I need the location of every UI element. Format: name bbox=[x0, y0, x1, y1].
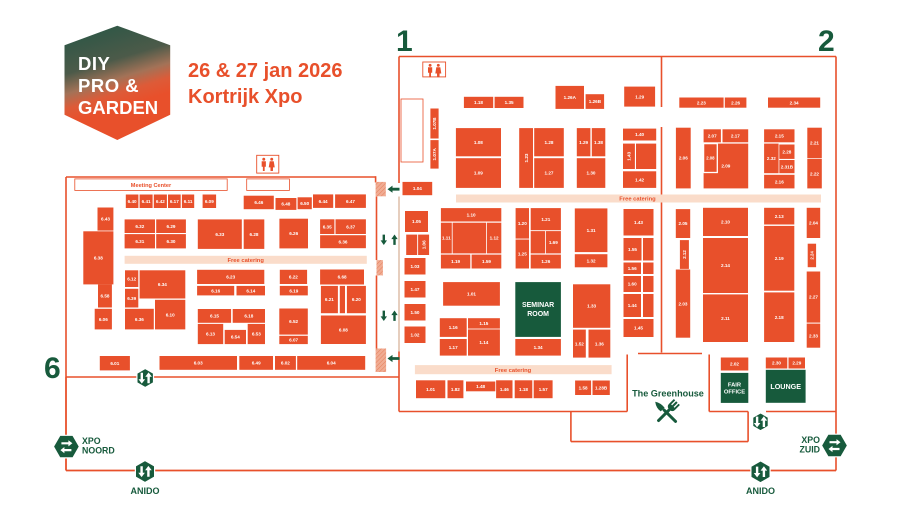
svg-text:2.29: 2.29 bbox=[792, 361, 801, 366]
svg-text:1: 1 bbox=[396, 25, 413, 58]
svg-text:2.27: 2.27 bbox=[809, 295, 818, 300]
svg-text:1.44: 1.44 bbox=[628, 303, 637, 308]
svg-text:6: 6 bbox=[44, 352, 61, 385]
svg-text:1.29: 1.29 bbox=[635, 94, 644, 99]
svg-text:1.43: 1.43 bbox=[627, 151, 632, 160]
svg-text:1.28B: 1.28B bbox=[595, 385, 608, 390]
svg-text:1.82: 1.82 bbox=[451, 387, 460, 392]
svg-text:1.31: 1.31 bbox=[587, 228, 596, 233]
svg-text:1.07B: 1.07B bbox=[432, 117, 437, 130]
svg-text:6.49: 6.49 bbox=[252, 361, 261, 366]
svg-text:2.05: 2.05 bbox=[679, 221, 688, 226]
svg-text:2.10: 2.10 bbox=[721, 220, 730, 225]
svg-text:1.43: 1.43 bbox=[634, 220, 643, 225]
svg-text:6.54: 6.54 bbox=[231, 335, 240, 340]
svg-text:1.25: 1.25 bbox=[518, 252, 527, 257]
svg-text:6.40: 6.40 bbox=[128, 199, 137, 204]
svg-text:GARDEN: GARDEN bbox=[78, 97, 158, 118]
svg-text:6.37: 6.37 bbox=[346, 224, 355, 229]
svg-text:2.18: 2.18 bbox=[775, 315, 784, 320]
svg-text:2.24: 2.24 bbox=[810, 251, 815, 260]
svg-text:2.23: 2.23 bbox=[697, 100, 706, 105]
svg-text:1.38: 1.38 bbox=[594, 140, 603, 145]
svg-text:6.11: 6.11 bbox=[184, 199, 193, 204]
svg-text:1.40: 1.40 bbox=[635, 132, 644, 137]
svg-text:6.19: 6.19 bbox=[289, 288, 298, 293]
svg-text:1.36: 1.36 bbox=[595, 341, 604, 346]
svg-text:2.08: 2.08 bbox=[706, 156, 715, 161]
svg-text:6.41: 6.41 bbox=[142, 199, 151, 204]
svg-text:6.10: 6.10 bbox=[166, 312, 175, 317]
svg-text:6.21: 6.21 bbox=[325, 297, 334, 302]
svg-text:2.03: 2.03 bbox=[679, 301, 688, 306]
svg-text:ROOM: ROOM bbox=[527, 311, 549, 318]
svg-text:1.46: 1.46 bbox=[500, 387, 509, 392]
svg-text:1.20: 1.20 bbox=[518, 221, 527, 226]
svg-text:1.26B: 1.26B bbox=[589, 99, 602, 104]
svg-text:1.52: 1.52 bbox=[575, 341, 584, 346]
svg-text:1.23: 1.23 bbox=[524, 153, 529, 162]
svg-text:1.18: 1.18 bbox=[519, 387, 528, 392]
svg-text:6.50: 6.50 bbox=[300, 201, 309, 206]
svg-text:6.42: 6.42 bbox=[156, 199, 165, 204]
svg-text:2.13: 2.13 bbox=[775, 214, 784, 219]
svg-text:1.05: 1.05 bbox=[412, 219, 421, 224]
svg-text:1.01: 1.01 bbox=[467, 292, 476, 297]
svg-text:1.34: 1.34 bbox=[534, 345, 543, 350]
svg-text:1.02: 1.02 bbox=[411, 332, 420, 337]
svg-text:6.46: 6.46 bbox=[254, 200, 263, 205]
svg-text:1.33: 1.33 bbox=[587, 304, 596, 309]
svg-text:6.68: 6.68 bbox=[338, 275, 347, 280]
svg-text:1.28: 1.28 bbox=[545, 140, 554, 145]
svg-text:2.06: 2.06 bbox=[679, 156, 688, 161]
svg-text:1.59: 1.59 bbox=[482, 259, 491, 264]
svg-text:Kortrijk Xpo: Kortrijk Xpo bbox=[188, 86, 302, 108]
svg-text:ANIDO: ANIDO bbox=[746, 486, 775, 496]
svg-text:2.26: 2.26 bbox=[731, 100, 740, 105]
svg-text:LOUNGE: LOUNGE bbox=[770, 382, 801, 391]
svg-text:6.22: 6.22 bbox=[289, 275, 298, 280]
svg-text:1.32: 1.32 bbox=[587, 258, 596, 263]
svg-text:6.53: 6.53 bbox=[252, 332, 261, 337]
svg-text:Free catering: Free catering bbox=[227, 258, 264, 264]
svg-text:6.52: 6.52 bbox=[289, 319, 298, 324]
svg-text:6.48: 6.48 bbox=[281, 202, 290, 207]
svg-text:1.55: 1.55 bbox=[628, 247, 637, 252]
svg-text:6.29: 6.29 bbox=[167, 224, 176, 229]
svg-text:1.58: 1.58 bbox=[579, 385, 588, 390]
svg-text:2.19: 2.19 bbox=[775, 256, 784, 261]
svg-text:26 & 27 jan 2026: 26 & 27 jan 2026 bbox=[188, 60, 343, 82]
svg-text:6.31: 6.31 bbox=[135, 239, 144, 244]
svg-text:6.23: 6.23 bbox=[226, 275, 235, 280]
svg-text:6.36: 6.36 bbox=[135, 317, 144, 322]
svg-text:6.28: 6.28 bbox=[250, 232, 259, 237]
svg-text:6.39: 6.39 bbox=[127, 296, 136, 301]
svg-text:1.26A: 1.26A bbox=[564, 95, 577, 100]
svg-text:1.07A: 1.07A bbox=[432, 147, 437, 160]
svg-text:ZUID: ZUID bbox=[799, 445, 820, 455]
svg-text:2.21: 2.21 bbox=[810, 141, 819, 146]
svg-text:6.08: 6.08 bbox=[339, 327, 348, 332]
svg-text:6.36: 6.36 bbox=[339, 239, 348, 244]
svg-text:1.26: 1.26 bbox=[541, 259, 550, 264]
svg-text:The Greenhouse: The Greenhouse bbox=[632, 389, 704, 399]
svg-text:2.04: 2.04 bbox=[809, 221, 818, 226]
svg-text:6.47: 6.47 bbox=[346, 199, 355, 204]
svg-text:1.11: 1.11 bbox=[442, 236, 451, 241]
svg-text:6.18: 6.18 bbox=[244, 314, 253, 319]
svg-text:6.03: 6.03 bbox=[194, 361, 203, 366]
svg-text:2.17: 2.17 bbox=[731, 134, 740, 139]
svg-text:ANIDO: ANIDO bbox=[131, 486, 160, 496]
svg-text:1.21: 1.21 bbox=[541, 217, 550, 222]
svg-text:2.09: 2.09 bbox=[721, 164, 730, 169]
svg-text:1.14: 1.14 bbox=[479, 340, 488, 345]
svg-text:1.15: 1.15 bbox=[479, 321, 488, 326]
svg-text:6.13: 6.13 bbox=[206, 332, 215, 337]
svg-text:2.31B: 2.31B bbox=[781, 164, 794, 169]
svg-text:1.45: 1.45 bbox=[634, 326, 643, 331]
svg-text:1.29: 1.29 bbox=[579, 140, 588, 145]
svg-text:1.04: 1.04 bbox=[413, 186, 422, 191]
svg-text:6.02: 6.02 bbox=[281, 361, 290, 366]
svg-text:XPO: XPO bbox=[801, 435, 820, 445]
svg-text:1.50: 1.50 bbox=[411, 310, 420, 315]
svg-text:2.11: 2.11 bbox=[721, 316, 730, 321]
svg-text:6.04: 6.04 bbox=[327, 361, 336, 366]
svg-text:1.08: 1.08 bbox=[474, 140, 483, 145]
svg-text:OFFICE: OFFICE bbox=[724, 390, 745, 396]
svg-text:6.38: 6.38 bbox=[94, 256, 103, 261]
svg-text:1.47: 1.47 bbox=[411, 287, 420, 292]
svg-text:1.42: 1.42 bbox=[635, 177, 644, 182]
svg-text:1.69: 1.69 bbox=[549, 240, 558, 245]
svg-text:Free catering: Free catering bbox=[495, 368, 532, 374]
svg-text:1.09: 1.09 bbox=[474, 171, 483, 176]
svg-text:2.12: 2.12 bbox=[682, 250, 687, 259]
svg-text:FAIR: FAIR bbox=[728, 383, 742, 389]
svg-text:1.03: 1.03 bbox=[411, 264, 420, 269]
svg-text:2.14: 2.14 bbox=[721, 263, 730, 268]
svg-text:6.58: 6.58 bbox=[101, 294, 110, 299]
svg-text:2.15: 2.15 bbox=[775, 134, 784, 139]
svg-text:6.34: 6.34 bbox=[158, 282, 167, 287]
svg-text:6.26: 6.26 bbox=[289, 231, 298, 236]
svg-text:Free catering: Free catering bbox=[619, 197, 656, 203]
svg-text:1.30: 1.30 bbox=[587, 171, 596, 176]
svg-text:NOORD: NOORD bbox=[82, 446, 115, 456]
svg-text:2.33: 2.33 bbox=[809, 333, 818, 338]
svg-text:1.17: 1.17 bbox=[449, 345, 458, 350]
svg-text:SEMINAR: SEMINAR bbox=[522, 302, 554, 309]
svg-text:6.33: 6.33 bbox=[215, 232, 224, 237]
svg-text:1.19: 1.19 bbox=[451, 259, 460, 264]
svg-text:2: 2 bbox=[818, 25, 835, 58]
svg-text:1.16: 1.16 bbox=[449, 325, 458, 330]
svg-text:2.22: 2.22 bbox=[810, 171, 819, 176]
svg-text:6.32: 6.32 bbox=[135, 224, 144, 229]
svg-text:1.27: 1.27 bbox=[545, 171, 554, 176]
svg-text:1.10: 1.10 bbox=[467, 213, 476, 218]
svg-text:6.12: 6.12 bbox=[127, 276, 136, 281]
svg-text:DIY: DIY bbox=[78, 53, 111, 74]
svg-text:1.56: 1.56 bbox=[628, 266, 637, 271]
svg-text:2.30: 2.30 bbox=[772, 361, 781, 366]
svg-text:1.48: 1.48 bbox=[476, 384, 485, 389]
svg-text:6.17: 6.17 bbox=[170, 199, 179, 204]
svg-text:2.07: 2.07 bbox=[708, 134, 717, 139]
svg-text:1.12: 1.12 bbox=[490, 236, 499, 241]
svg-text:6.35: 6.35 bbox=[323, 224, 332, 229]
svg-text:2.02: 2.02 bbox=[730, 362, 739, 367]
svg-text:6.07: 6.07 bbox=[289, 338, 298, 343]
svg-text:2.28: 2.28 bbox=[782, 149, 791, 154]
svg-text:6.06: 6.06 bbox=[99, 317, 108, 322]
svg-text:6.14: 6.14 bbox=[246, 288, 255, 293]
svg-text:6.01: 6.01 bbox=[110, 361, 119, 366]
svg-text:PRO &: PRO & bbox=[78, 75, 139, 96]
svg-text:1.18: 1.18 bbox=[474, 100, 483, 105]
svg-text:6.09: 6.09 bbox=[205, 199, 214, 204]
svg-text:2.32: 2.32 bbox=[767, 156, 776, 161]
svg-text:6.20: 6.20 bbox=[352, 297, 361, 302]
svg-text:6.30: 6.30 bbox=[167, 239, 176, 244]
svg-text:6.43: 6.43 bbox=[101, 217, 110, 222]
svg-text:1.01: 1.01 bbox=[426, 387, 435, 392]
svg-text:1.06: 1.06 bbox=[421, 240, 426, 249]
svg-text:2.16: 2.16 bbox=[775, 179, 784, 184]
svg-text:1.60: 1.60 bbox=[628, 282, 637, 287]
svg-text:XPO: XPO bbox=[82, 436, 101, 446]
svg-text:6.16: 6.16 bbox=[211, 288, 220, 293]
svg-text:2.34: 2.34 bbox=[790, 100, 799, 105]
svg-text:6.15: 6.15 bbox=[210, 314, 219, 319]
svg-text:1.35: 1.35 bbox=[505, 100, 514, 105]
svg-text:6.44: 6.44 bbox=[319, 199, 328, 204]
svg-text:Meeting Center: Meeting Center bbox=[131, 183, 172, 189]
svg-text:1.57: 1.57 bbox=[539, 387, 548, 392]
